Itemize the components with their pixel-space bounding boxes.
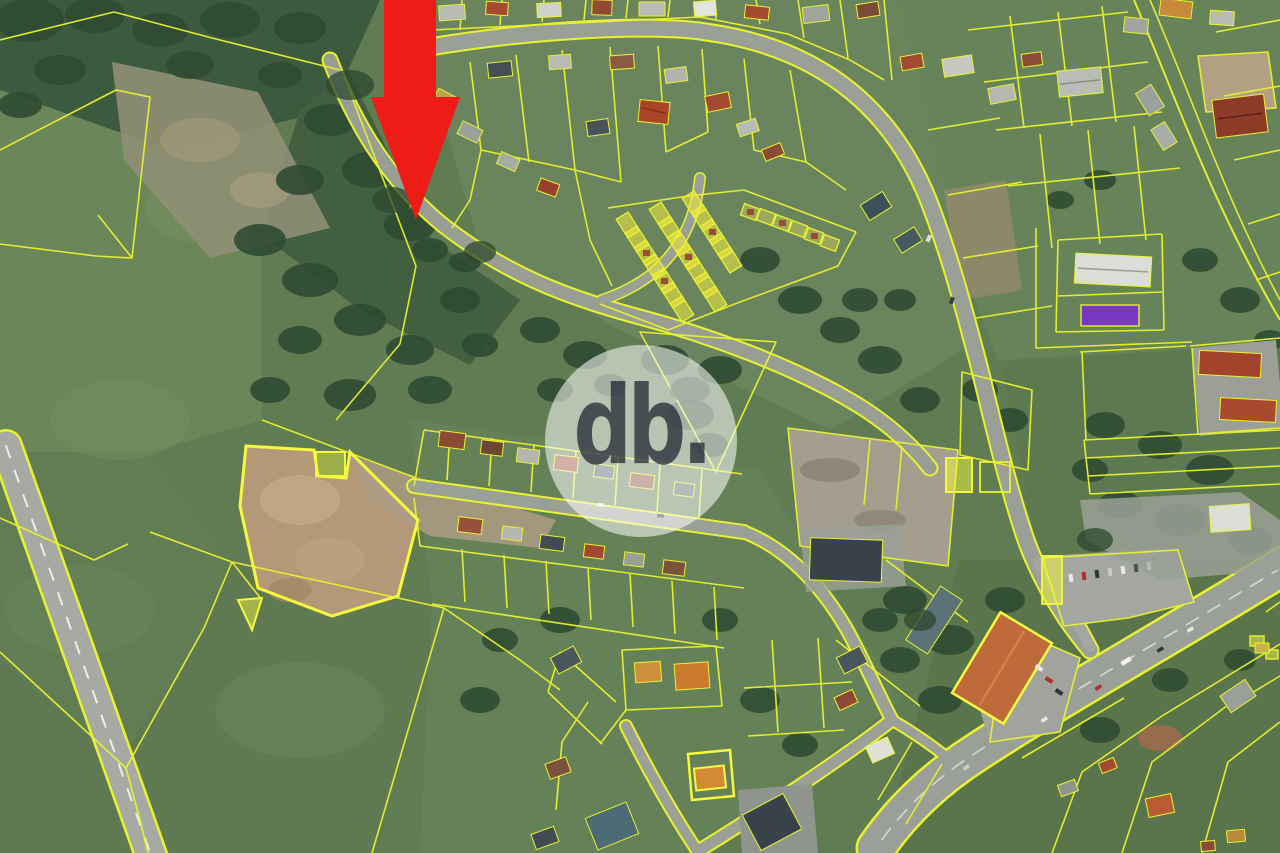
selected-parcel-purple <box>1081 305 1139 326</box>
aerial-basemap <box>0 0 1280 853</box>
red-hip-roof-house <box>638 99 670 124</box>
aerial-map-image: db. <box>0 0 1280 853</box>
long-white-building <box>1074 253 1151 287</box>
large-building-ne <box>1057 67 1103 97</box>
large-red-roof-building-ne <box>1212 94 1268 138</box>
